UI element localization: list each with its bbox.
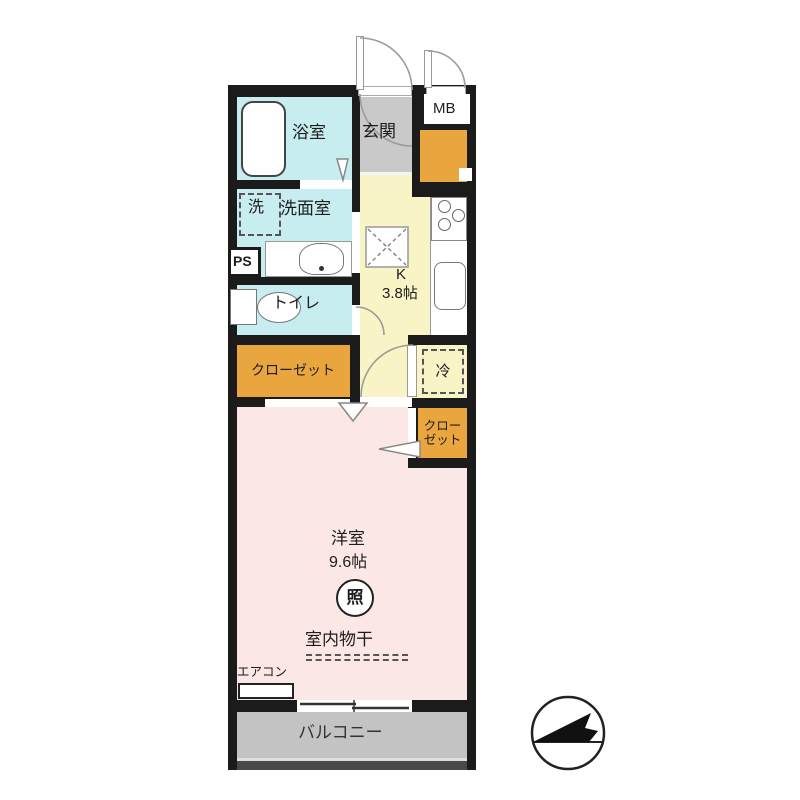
wall-below-genkan xyxy=(412,180,476,197)
closet-right: クロー ゼット xyxy=(416,406,469,460)
entrance-door-leaf xyxy=(356,36,364,90)
stove-burner-2 xyxy=(452,209,465,222)
floor-plan: クロー ゼット 冷 照 xyxy=(0,0,800,800)
wall-bottom-b xyxy=(412,700,476,712)
label-closet-left: クローゼット xyxy=(251,362,335,378)
balcony-outer-band xyxy=(237,761,467,770)
mb-door-leaf xyxy=(424,50,432,88)
label-washer: 洗 xyxy=(248,199,264,217)
wall-niche xyxy=(459,168,472,181)
living-door-leaf xyxy=(407,345,417,397)
label-kitchen: K xyxy=(396,266,406,283)
label-toilet: トイレ xyxy=(272,295,320,313)
bathroom-door-opening xyxy=(300,180,347,189)
fridge-space: 冷 xyxy=(422,349,464,394)
label-washroom: 洗面室 xyxy=(280,199,331,219)
ceiling-light: 照 xyxy=(336,579,374,617)
door-arc-mb xyxy=(428,51,465,88)
stove-burner-1 xyxy=(438,200,451,213)
label-pipe-space: PS xyxy=(233,253,252,269)
label-bathroom: 浴室 xyxy=(292,123,326,143)
label-meter-box: MB xyxy=(433,100,456,117)
wall-bottom-a xyxy=(228,700,297,712)
label-closet-right-2: ゼット xyxy=(424,433,462,447)
wall-mid-vert-b xyxy=(352,273,360,305)
kitchen-sink xyxy=(434,262,466,310)
washbasin-drain xyxy=(319,266,324,271)
living-door-opening xyxy=(360,397,412,407)
label-aircon: エアコン xyxy=(237,665,287,679)
north-arrow-icon xyxy=(532,697,604,769)
label-fridge: 冷 xyxy=(435,363,450,380)
drying-rod xyxy=(306,654,408,661)
balcony-window-opening xyxy=(297,700,412,712)
wall-top-a xyxy=(228,85,360,97)
washroom-door-opening xyxy=(352,212,360,273)
stove-burner-3 xyxy=(438,218,451,231)
wall-bath-bottom xyxy=(228,180,300,189)
room-kitchen-right xyxy=(412,197,430,335)
label-balcony: バルコニー xyxy=(298,723,383,743)
wall-above-fridge xyxy=(408,335,476,345)
label-indoor-drying: 室内物干 xyxy=(305,630,373,650)
label-living-size: 9.6帖 xyxy=(329,554,367,572)
wall-mid-vert-a xyxy=(352,97,360,212)
entrance-opening xyxy=(358,86,412,96)
toilet-tank xyxy=(230,289,257,325)
label-entrance: 玄関 xyxy=(362,122,396,142)
label-ceiling-light: 照 xyxy=(347,588,364,608)
label-kitchen-size: 3.8帖 xyxy=(382,285,418,302)
label-closet-right-1: クロー xyxy=(424,419,462,433)
aircon-box xyxy=(238,683,294,699)
wall-wash-toilet xyxy=(228,277,352,285)
door-arc-entrance-out xyxy=(360,38,412,90)
bathtub xyxy=(241,101,286,177)
toilet-door-opening xyxy=(352,305,360,335)
label-living: 洋室 xyxy=(331,529,365,549)
